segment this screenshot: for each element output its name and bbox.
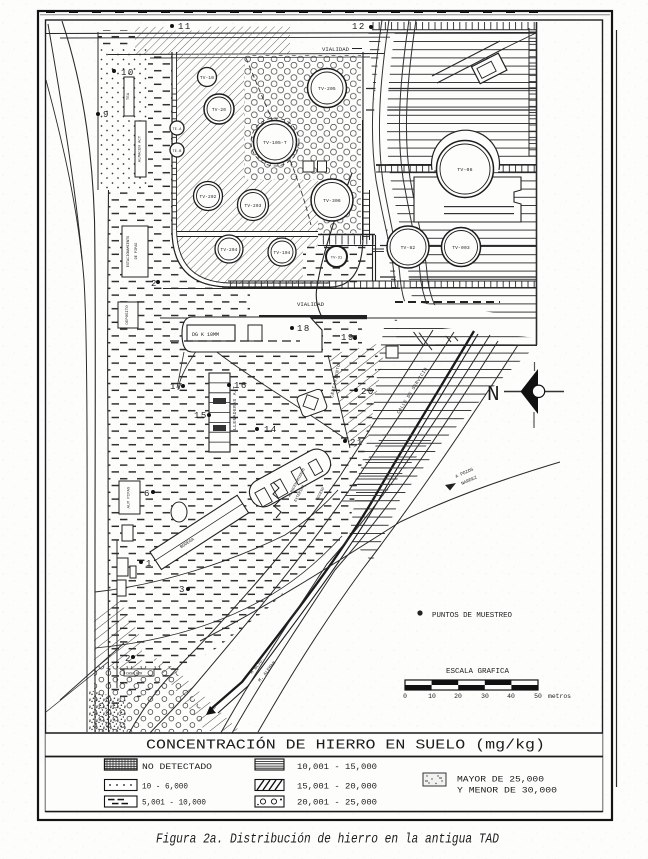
svg-text:TV-105-T: TV-105-T bbox=[263, 140, 287, 146]
svg-text:11: 11 bbox=[178, 22, 192, 32]
svg-text:TE-B: TE-B bbox=[173, 150, 182, 154]
svg-text:TV-104: TV-104 bbox=[273, 251, 290, 256]
svg-text:TEA: TEA bbox=[127, 92, 131, 100]
svg-text:TV-204: TV-204 bbox=[220, 248, 237, 253]
svg-text:18: 18 bbox=[297, 324, 311, 334]
svg-text:16: 16 bbox=[234, 381, 248, 391]
svg-text:20: 20 bbox=[361, 387, 375, 397]
svg-text:15: 15 bbox=[194, 411, 208, 421]
svg-text:TV-08: TV-08 bbox=[457, 167, 472, 173]
svg-text:TV-20: TV-20 bbox=[212, 108, 226, 113]
svg-text:TV-202: TV-202 bbox=[199, 195, 216, 200]
svg-text:ALMACEN ACT: ALMACEN ACT bbox=[139, 135, 143, 162]
svg-text:12: 12 bbox=[352, 22, 366, 32]
svg-text:3: 3 bbox=[179, 585, 186, 595]
svg-text:10 - 6,000: 10 - 6,000 bbox=[142, 782, 188, 792]
svg-text:TV-203: TV-203 bbox=[244, 204, 261, 209]
svg-text:0: 0 bbox=[403, 693, 407, 700]
svg-text:TE-A: TE-A bbox=[173, 128, 183, 132]
svg-text:TV-10: TV-10 bbox=[200, 76, 214, 81]
svg-text:TV-003: TV-003 bbox=[452, 245, 470, 251]
svg-text:10,001 - 15,000: 10,001 - 15,000 bbox=[297, 762, 377, 772]
svg-text:10: 10 bbox=[428, 693, 436, 700]
svg-text:40: 40 bbox=[507, 693, 515, 700]
svg-text:15,001 - 20,000: 15,001 - 20,000 bbox=[297, 782, 377, 792]
svg-text:Y MENOR DE 30,000: Y MENOR DE 30,000 bbox=[457, 786, 557, 796]
svg-text:DG K 10MM: DG K 10MM bbox=[192, 332, 219, 338]
svg-text:CONCENTRACIÓN DE HIERRO EN SUE: CONCENTRACIÓN DE HIERRO EN SUELO (mg/kg) bbox=[146, 738, 545, 754]
svg-text:TV-205: TV-205 bbox=[318, 86, 336, 92]
svg-text:9: 9 bbox=[103, 110, 110, 120]
svg-text:N: N bbox=[487, 384, 500, 407]
svg-text:21: 21 bbox=[350, 438, 364, 448]
svg-text:6: 6 bbox=[144, 489, 151, 499]
svg-text:PUNTOS DE MUESTREO: PUNTOS DE MUESTREO bbox=[432, 612, 512, 620]
svg-text:20: 20 bbox=[454, 693, 462, 700]
svg-text:VIALIDAD: VIALIDAD bbox=[322, 46, 350, 53]
svg-text:TV-31: TV-31 bbox=[331, 256, 343, 260]
svg-text:ALM PIPAS: ALM PIPAS bbox=[128, 486, 132, 508]
svg-text:30: 30 bbox=[481, 693, 489, 700]
svg-text:VIALIDAD: VIALIDAD bbox=[297, 301, 325, 308]
svg-text:LLENADERAS A/T: LLENADERAS A/T bbox=[232, 386, 238, 430]
svg-text:19: 19 bbox=[341, 333, 355, 343]
svg-text:20,001 - 25,000: 20,001 - 25,000 bbox=[297, 798, 377, 808]
svg-text:MAYOR DE 25,000: MAYOR DE 25,000 bbox=[457, 775, 544, 785]
svg-text:Figura 2a. Distribución de hie: Figura 2a. Distribución de hierro en la … bbox=[156, 832, 499, 848]
svg-text:DEPOSITO: DEPOSITO bbox=[126, 305, 130, 325]
svg-text:ESCALA GRAFICA: ESCALA GRAFICA bbox=[446, 668, 510, 676]
svg-text:metros: metros bbox=[548, 693, 571, 700]
svg-text:ESTACIONAMIENTO: ESTACIONAMIENTO bbox=[127, 236, 131, 268]
svg-text:2: 2 bbox=[125, 654, 132, 664]
svg-text:TV-306: TV-306 bbox=[323, 198, 341, 204]
svg-text:17: 17 bbox=[170, 382, 184, 392]
svg-text:50: 50 bbox=[534, 693, 542, 700]
svg-text:NO DETECTADO: NO DETECTADO bbox=[142, 762, 212, 772]
svg-text:DE PIPAS: DE PIPAS bbox=[135, 243, 139, 260]
svg-text:10: 10 bbox=[121, 68, 135, 78]
svg-text:2: 2 bbox=[151, 279, 158, 289]
svg-text:5,001 - 10,000: 5,001 - 10,000 bbox=[142, 798, 206, 808]
svg-text:14: 14 bbox=[264, 425, 278, 435]
svg-text:TV-82: TV-82 bbox=[401, 245, 416, 251]
svg-text:1: 1 bbox=[146, 559, 153, 569]
